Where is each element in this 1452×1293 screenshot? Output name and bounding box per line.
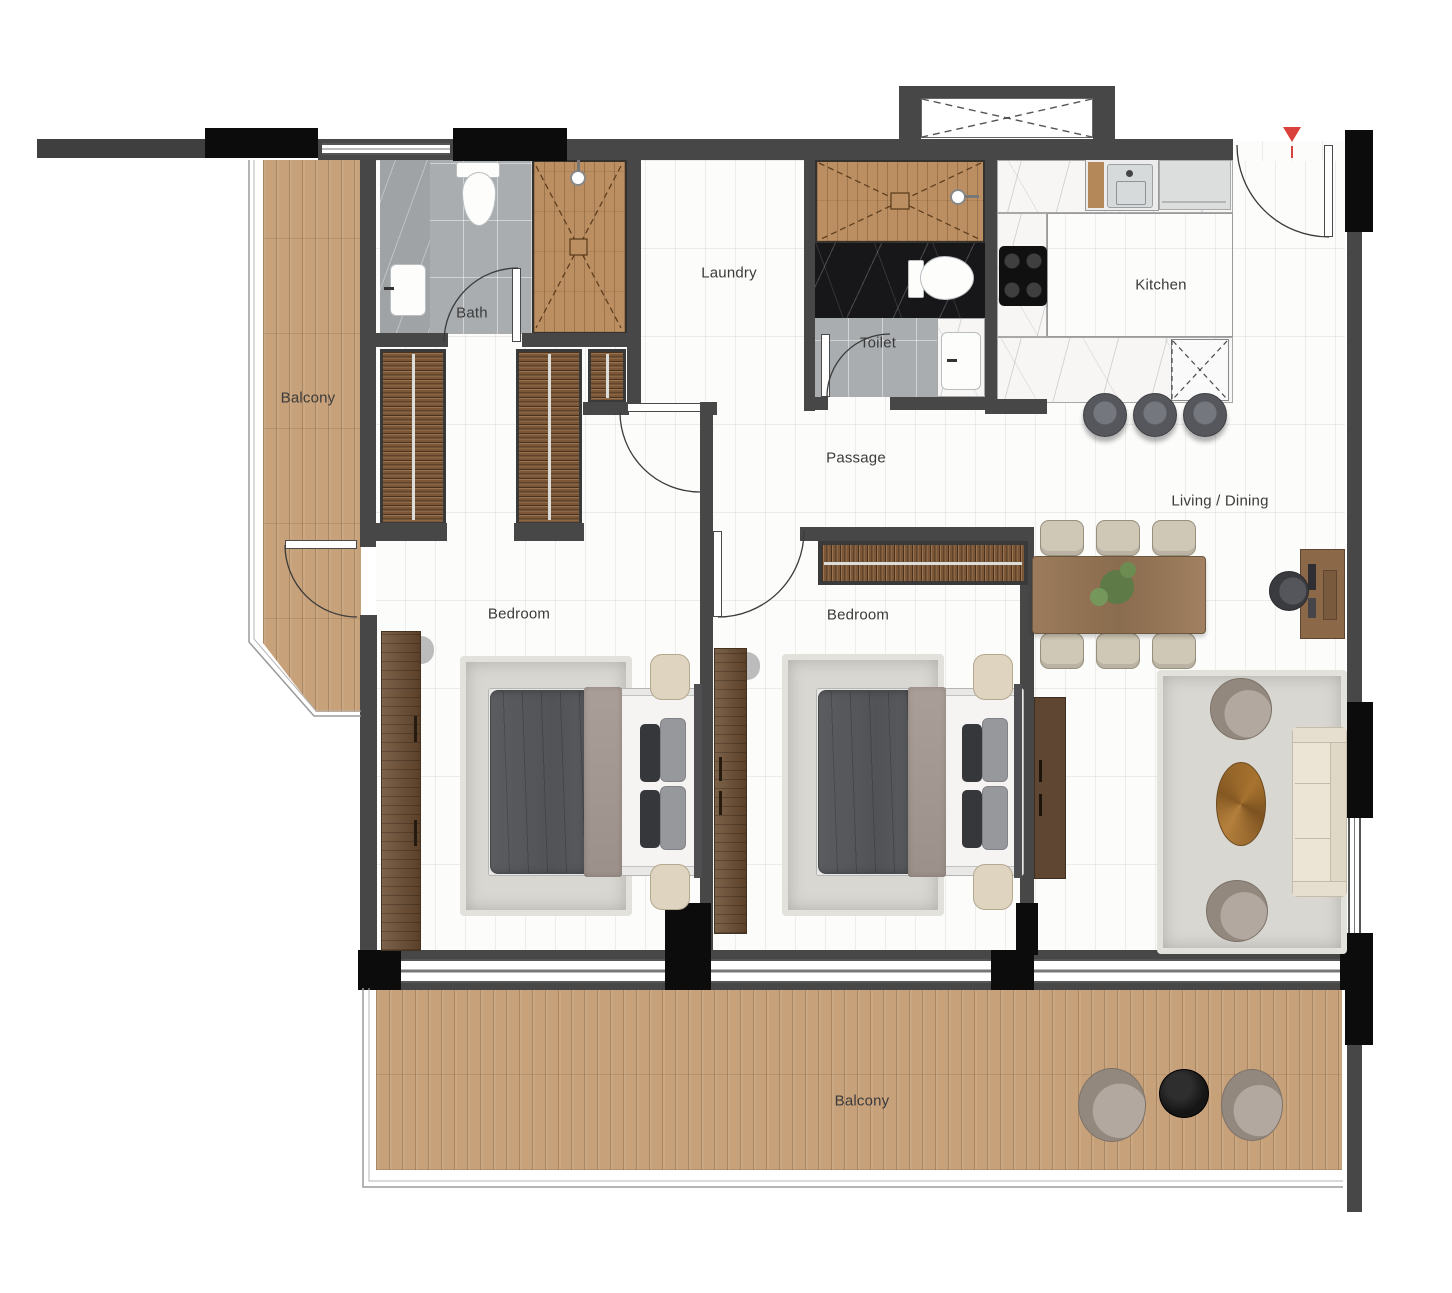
railing [249, 160, 361, 716]
room-label-laundry: Laundry [701, 265, 757, 282]
room-label-passage: Passage [826, 450, 886, 467]
room-label-balcony-left: Balcony [281, 390, 336, 407]
shower-drain [891, 193, 909, 209]
room-label-balcony-bottom: Balcony [835, 1093, 890, 1110]
door-swing-arc [285, 545, 357, 617]
room-label-toilet: Toilet [860, 335, 896, 352]
room-label-bedroom-1: Bedroom [488, 606, 550, 623]
shower-drain [570, 239, 587, 255]
railing [254, 160, 361, 711]
door-swing-arc [1237, 145, 1329, 237]
door-swing-arc [620, 412, 700, 492]
railing [369, 988, 1343, 1181]
dishwasher-x [1172, 340, 1227, 400]
room-label-bedroom-2: Bedroom [827, 607, 889, 624]
plan-annotations [0, 0, 1452, 1293]
room-label-bath: Bath [456, 305, 488, 322]
room-label-living-dining: Living / Dining [1171, 493, 1268, 510]
door-swing-arc [718, 531, 804, 617]
floor-plan: Balcony Bath Laundry Toilet Kitchen Pass… [0, 0, 1452, 1293]
railing [363, 988, 1343, 1187]
shaft-x [922, 99, 1092, 137]
room-label-kitchen: Kitchen [1135, 277, 1186, 294]
